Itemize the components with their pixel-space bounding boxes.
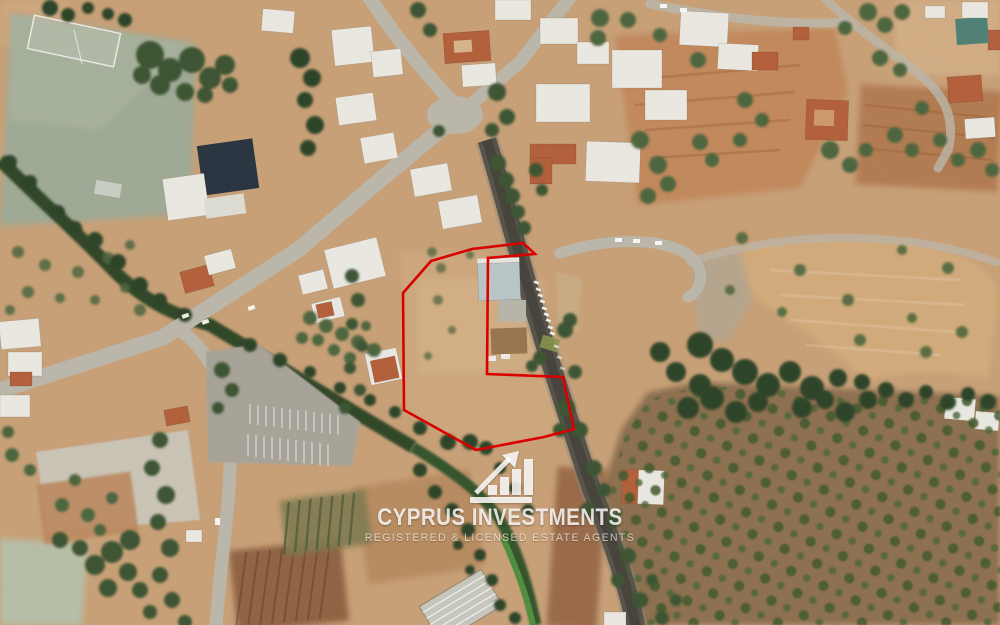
noise-overlay [0, 0, 1000, 625]
satellite-photo: CYPRUS INVESTMENTS REGISTERED & LICENSED… [0, 0, 1000, 625]
satellite-scene [0, 0, 1000, 625]
